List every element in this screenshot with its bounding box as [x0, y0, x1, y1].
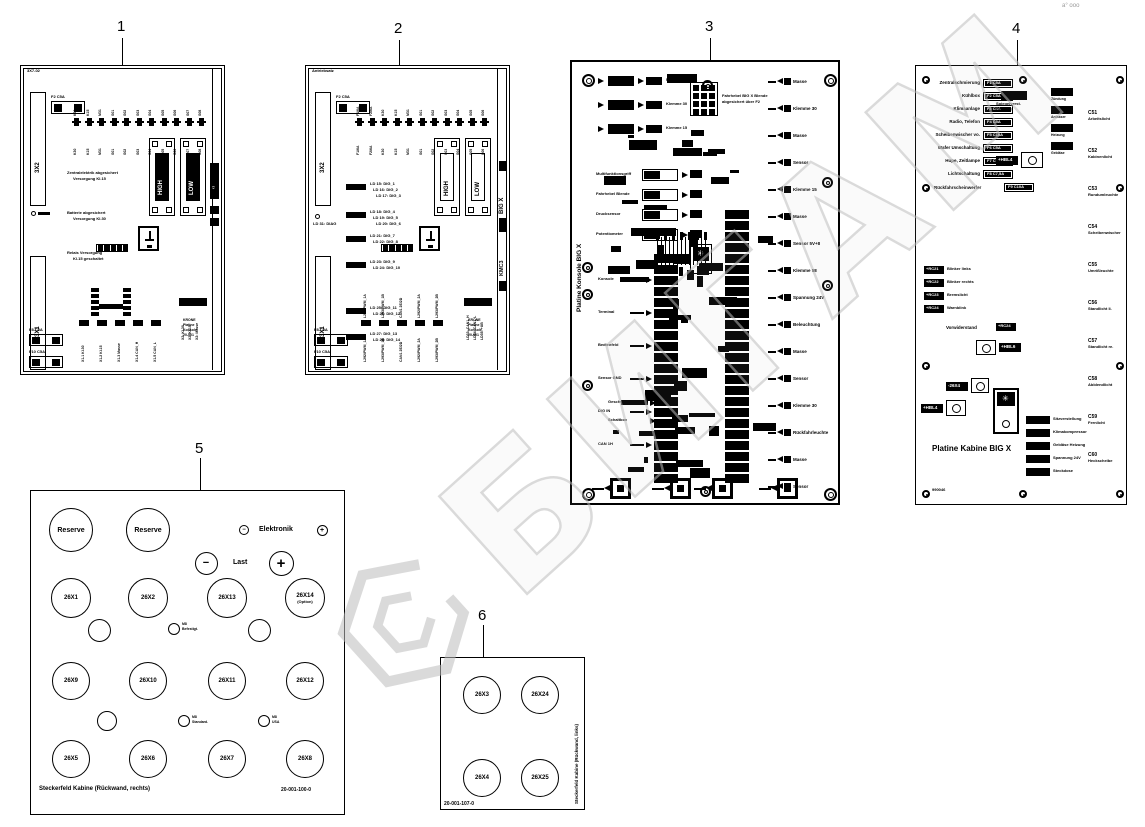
corner-note-line: Platine [468, 323, 479, 327]
connector-circle-label: 26X2 [141, 595, 155, 601]
strip-cell [725, 375, 749, 384]
arrow-icon [777, 321, 783, 327]
panel-side-label: Steckerfeld Kabine (Rückwand, links) [574, 664, 579, 804]
bottom-col-label: L292/PWM_2A [417, 328, 421, 362]
mounting-hole-inner [1120, 80, 1122, 82]
pin-label: S05 [469, 92, 473, 116]
relay-label: +RC23 [926, 293, 939, 298]
component-label: Gebläse [1051, 151, 1065, 155]
pin-bar [455, 121, 464, 123]
component [690, 210, 702, 218]
text-block-line: Zentralelektrik abgesichert [67, 171, 118, 176]
trace [718, 346, 729, 352]
strip-cell [725, 353, 749, 362]
corner-note-line: 20-001 [468, 333, 479, 337]
fuse-label: F8 C5A [314, 328, 328, 333]
component [690, 170, 702, 178]
terminal [784, 240, 791, 247]
terminal [784, 456, 791, 463]
mounting-hole-inner [926, 188, 928, 190]
text-block-line: Kl.15 geschaltet [73, 257, 103, 262]
mid-label: abgesichert über F2 [722, 100, 760, 105]
screw-mark [31, 211, 36, 216]
connector-circle: − [195, 552, 218, 575]
lead-line [768, 243, 776, 245]
relay-tab [152, 207, 158, 213]
trace [673, 148, 702, 155]
relay-tab [152, 141, 158, 147]
connector-circle-label: + [320, 527, 324, 534]
component-fill [644, 211, 660, 219]
comb-line [705, 237, 706, 265]
bar-gap [388, 245, 389, 251]
component-label: Klemme 15 [666, 126, 687, 131]
terminal-label: Sensor [793, 160, 808, 165]
relay-label: +RC22 [926, 280, 939, 285]
relay-tab [468, 207, 474, 213]
trace [711, 177, 730, 184]
bottom-col-label: L293/PWM_2B [435, 328, 439, 362]
mounting-hole-inner [1023, 494, 1025, 496]
strip-cell [725, 210, 749, 219]
lead-line [652, 488, 664, 490]
terminal [784, 267, 791, 274]
pin-bar [468, 121, 477, 123]
trace [636, 260, 658, 269]
connector-circle-label: Reserve [134, 527, 161, 534]
bottom-col-label: X1.1 Kl.30 [81, 328, 85, 362]
connector-circle: 26X8 [286, 740, 324, 778]
arrow-icon [598, 78, 604, 84]
pin-label: K30 [73, 129, 77, 155]
connector-circle-label: 26X6 [141, 756, 155, 762]
fuse-fill: F9 C10A [1006, 185, 1032, 190]
lead-line [630, 345, 644, 347]
connector-circle-label: 26X8 [298, 756, 312, 762]
bottom-col-label: X1.4 CAN_H [135, 328, 139, 362]
pin-bar [380, 121, 389, 123]
component [608, 76, 634, 86]
fuse-box [314, 334, 348, 346]
connector-circle: 26X11 [208, 662, 246, 700]
arrow-icon [777, 213, 783, 219]
arrow-icon [777, 375, 783, 381]
terminal [784, 213, 791, 220]
component-label: Klemme 30 [666, 102, 687, 107]
lamp-name: Standlicht re. [1088, 345, 1113, 350]
trace [631, 228, 636, 236]
trace [628, 135, 634, 138]
bottom-col-cap [397, 320, 407, 326]
fuse-element [337, 337, 345, 344]
component [1001, 91, 1027, 100]
right-col-label: X2: Masse [195, 310, 199, 340]
mounting-hole [824, 488, 837, 501]
diag-label: LD 31: DIAG [313, 222, 336, 227]
fuse-box: F9 C10A [1004, 183, 1034, 192]
component-label: Spannung 24V [1053, 456, 1081, 461]
terminal-label: Klemme 30 [793, 403, 817, 408]
strip-cell [725, 320, 749, 329]
fuse-box: F6 C5A [983, 144, 1013, 153]
lead-line [768, 432, 776, 434]
relay-socket [1021, 152, 1043, 168]
matrix-cell [693, 109, 699, 115]
connector-circle-label: 26X3 [475, 692, 489, 698]
relay: HIGH [434, 138, 460, 216]
matrix-cell [701, 85, 707, 91]
panel-footer-title: Steckerfeld Kabine (Rückwand, rechts) [39, 786, 150, 793]
led [346, 212, 366, 218]
connector-label: 3X2 [320, 133, 327, 173]
pin-label: M31 [98, 92, 102, 116]
terminal-label: Spannung 24V [793, 295, 824, 300]
callout-1: 1 [117, 18, 125, 35]
component [1051, 88, 1073, 96]
h-cell [123, 312, 131, 316]
relay-label: +HBL4 [998, 157, 1012, 162]
connector-circle-label: + [277, 555, 286, 572]
terminal-label: Masse [793, 457, 807, 462]
mounting-hole [582, 488, 595, 501]
lead-line [768, 324, 776, 326]
component-box [642, 169, 678, 181]
relay-tag: +HBL6 [999, 343, 1021, 352]
pin-label: K15 [394, 129, 398, 155]
panel-4-platine-kabine: ZentralschmierungF1 C5AKühlboxF2 C5AKlim… [915, 65, 1127, 505]
pin-bar [122, 121, 131, 123]
relay-body: LOW [186, 153, 200, 201]
relay-body: HIGH [155, 153, 169, 201]
board-side-label: Platine Konsole BIG X [576, 102, 583, 312]
panel-6-steckerfeld-links: 26X326X2426X426X25Steckerfeld Kabine (Rü… [440, 657, 585, 810]
led-label: LD 17: DIG_3 [376, 194, 401, 199]
right-bar [464, 298, 492, 306]
fuse-box [51, 101, 85, 114]
trace [730, 170, 738, 173]
trace [709, 297, 737, 305]
mounting-hole-inner [586, 293, 590, 297]
edge-mark: ‹‹ [212, 173, 218, 189]
component-label: Steckdose [1053, 469, 1073, 474]
component [608, 124, 634, 134]
pin-label: S04 [148, 92, 152, 116]
connector-circle [178, 715, 190, 727]
panel-footer-partno: 20-001-107-0 [444, 802, 474, 808]
h-cell [123, 288, 131, 292]
strip-cell [725, 397, 749, 406]
trace [673, 299, 679, 309]
terminal [784, 78, 791, 85]
relay-tag: +RC23 [924, 292, 944, 300]
power-pin [677, 485, 684, 492]
mounting-hole [822, 280, 833, 291]
component-label: Sensor GND [598, 376, 622, 381]
pin-bar [443, 121, 452, 123]
lead-line [694, 488, 706, 490]
connector-circle: 26X25 [521, 759, 559, 797]
pin-bar [135, 121, 144, 123]
terminal-label: Masse [793, 214, 807, 219]
component [1026, 455, 1050, 463]
pin-label: K15 [86, 129, 90, 155]
strip-cell [654, 463, 678, 472]
led-label: LD 16: DIG_2 [373, 188, 398, 193]
component-label: Sitzverstellung [1053, 417, 1081, 422]
relay-tag: +RC21 [924, 266, 944, 274]
relay-name: Bremslicht [947, 293, 968, 298]
connector-circle-label: − [203, 557, 209, 569]
socket-hole [976, 382, 985, 391]
h-cell [91, 306, 99, 310]
matrix-cell [693, 93, 699, 99]
component-label: Gebläse Heizung [1053, 443, 1085, 448]
terminal-label: Sensor [793, 376, 808, 381]
mounting-hole [824, 74, 837, 87]
connector-circle-label: − [242, 527, 246, 533]
fuse-code: F1 C5A [987, 81, 1001, 86]
corner-note-line: Konsole [468, 328, 482, 332]
trace [690, 468, 711, 478]
connector-circle-label: 26X25 [531, 775, 548, 781]
component-label: Fahrhebel Blende [596, 192, 630, 197]
edge-label: BIG X [499, 174, 506, 214]
leader-line-2 [399, 40, 400, 65]
pin-label: K15 [86, 92, 90, 116]
arrow-icon [638, 78, 644, 84]
trace [758, 236, 773, 243]
fuse-fill: F1 C5A [985, 81, 1011, 86]
matrix-cell [701, 93, 707, 99]
bottom-col-cap [133, 320, 143, 326]
arrow-icon [646, 409, 652, 415]
connector-circle: 26X6 [129, 740, 167, 778]
lead-line [768, 405, 776, 407]
fuse-name: Kühlbox [920, 93, 980, 98]
terminal [784, 402, 791, 409]
bottom-col-label: L293/PWM_1B [381, 298, 385, 318]
fuse-name: Radio, Telefon [920, 119, 980, 124]
arrow-icon [777, 159, 783, 165]
climate-hole [1002, 420, 1010, 428]
edge-block [499, 281, 507, 291]
pin-label: S08 [198, 92, 202, 116]
relay-tab [451, 141, 457, 147]
relay-label: +RC21 [926, 267, 939, 272]
strip-cell [654, 441, 678, 450]
component-label: Klimakompressor [1053, 430, 1087, 435]
arrow-icon [777, 348, 783, 354]
relay-name: Warnblink [947, 306, 966, 311]
switch-symbol-icon [138, 226, 159, 251]
pin-bar [368, 121, 377, 123]
strip-cell [654, 287, 678, 296]
relay-label: +HBL4 [923, 405, 937, 410]
bottom-col-label: L292/PWM_1A [363, 328, 367, 362]
relay-tab [183, 141, 189, 147]
trace [682, 368, 706, 378]
arrow-icon [682, 172, 688, 178]
pin-bar [172, 121, 181, 123]
connector-circle [97, 711, 117, 731]
connector-circle: 26X7 [208, 740, 246, 778]
relay-tag: +RC22 [924, 279, 944, 287]
lamp-name: Arbeitslicht [1088, 117, 1110, 122]
pin-bar [97, 121, 106, 123]
fuse-box [29, 334, 63, 346]
lead-line [768, 351, 776, 353]
callout-6: 6 [478, 607, 486, 624]
relay-name: Blinker rechts [947, 280, 974, 285]
arrow-icon [646, 343, 652, 349]
small-conn-label: M8 [182, 622, 187, 626]
terminal [784, 186, 791, 193]
panel-footer-partno: 20-001-100-0 [281, 788, 311, 794]
relay-label: LOW [189, 159, 196, 195]
arrow-icon [650, 418, 656, 424]
component [1026, 429, 1050, 437]
relay-coil [1028, 156, 1037, 165]
sym-bar [145, 239, 154, 241]
matrix-cell [701, 101, 707, 107]
fuse-element [339, 104, 347, 112]
connector-circle [168, 623, 180, 635]
connector-circle-label: 26X7 [220, 756, 234, 762]
connector-3x2: 3X2 [30, 92, 46, 206]
component-label: Drucksensor [596, 212, 620, 217]
pin-bar [393, 121, 402, 123]
led [346, 184, 366, 190]
trace [620, 277, 649, 282]
board-header: 3X7-02 [27, 69, 40, 74]
pin-bar [147, 121, 156, 123]
connector-circle: 26X9 [52, 662, 90, 700]
fuse-fill: F5 C10A [985, 133, 1011, 138]
trace [644, 457, 648, 463]
connector-circle: 26X14(Option) [285, 578, 325, 618]
pin-label: F1/6A [356, 92, 360, 116]
pin-bar [72, 121, 81, 123]
bottom-col-label: L292/PWM_1A [363, 298, 367, 318]
trace [699, 263, 723, 271]
mounting-hole-inner [586, 384, 590, 388]
lead-line [768, 297, 776, 299]
led-label: LD 19: DIG_5 [373, 216, 398, 221]
relay-tab [468, 141, 474, 147]
arrow-icon [646, 310, 652, 316]
lead-line [768, 162, 776, 164]
small-conn-label: Befestigt. [182, 627, 198, 631]
connector-label: 3X2 [35, 133, 42, 173]
fuse-code: F2 C5A [987, 94, 1001, 99]
bottom-col-cap [97, 320, 107, 326]
strip-cell [654, 331, 678, 340]
text-block-line: Batterie abgesichert [67, 211, 105, 216]
power-connector [777, 478, 798, 499]
terminal [784, 105, 791, 112]
mounting-hole-inner [1120, 494, 1122, 496]
relay-tag: +RC24 [924, 305, 944, 313]
trace [658, 245, 664, 255]
arrow-icon [777, 78, 783, 84]
trace [608, 266, 630, 274]
fuse-name: Klimaanlage [920, 106, 980, 111]
strip-cell [725, 243, 749, 252]
connector-circle-label: 26X9 [64, 678, 78, 684]
mounting-hole-inner [1120, 188, 1122, 190]
terminal-label: Masse [793, 349, 807, 354]
mounting-hole [1019, 490, 1027, 498]
mounting-hole-inner [926, 366, 928, 368]
component-label: Bedienfeld [598, 343, 618, 348]
right-col-label: LD35: +UB [480, 310, 484, 340]
mounting-hole-inner [586, 78, 592, 84]
fuse-name: Zentralschmierung [920, 80, 980, 85]
board-header: Antriebsatz [312, 69, 334, 74]
text-block-line: Versorgung Kl.30 [73, 217, 106, 222]
mounting-hole [922, 184, 930, 192]
fuse-label: F10 C5A [314, 350, 330, 355]
component [646, 125, 662, 133]
trace [675, 427, 694, 434]
terminal-label: Klemme 58 [793, 268, 817, 273]
panel-3-platine-konsole: Platine Konsole BIG XMasseKlemme 30Klemm… [570, 60, 840, 505]
mounting-hole [582, 289, 593, 300]
connector-circle-label: 26X1 [64, 595, 78, 601]
terminal-label: Beleuchtung [793, 322, 820, 327]
panel-2-platine-kmc3: Antriebsatz3X23X1F2 C5AF1/6AF1/6AF2/6AF2… [305, 65, 510, 375]
right-bar [179, 298, 207, 306]
sym-foot [147, 245, 152, 248]
h-cell [91, 288, 99, 292]
arrow-icon [777, 132, 783, 138]
text-block-line: Versorgung Kl.15 [73, 177, 106, 182]
fuse-box [336, 101, 370, 114]
lead-line [630, 411, 644, 413]
switch-symbol-icon [419, 226, 440, 251]
strip-cell [725, 309, 749, 318]
component [1026, 442, 1050, 450]
led [346, 262, 366, 268]
component [1026, 416, 1050, 424]
component-fill [644, 191, 660, 199]
pin-label: F1/6A [356, 129, 360, 155]
lead-line [768, 189, 776, 191]
power-connector [670, 478, 691, 499]
pin-label: S03 [136, 92, 140, 116]
connector-circle: − [239, 525, 249, 535]
pin-label: F2/6A [369, 92, 373, 116]
led-label: LD 20: DIG_6 [376, 222, 401, 227]
terminal [784, 348, 791, 355]
relay-tab [197, 141, 203, 147]
bar-gap [395, 245, 396, 251]
connector-circle [248, 619, 271, 642]
sym-line [149, 231, 151, 239]
component-label: Anlasser [1051, 115, 1066, 119]
lead-line [768, 135, 776, 137]
corner-note-line: 20-001 [183, 333, 194, 337]
relay-socket [976, 340, 996, 355]
component-label: Spiegelverst. Heizung [996, 102, 1036, 111]
matrix-cell [693, 101, 699, 107]
trace [669, 315, 690, 320]
component [1051, 142, 1073, 150]
corner-note-line: Platine [183, 323, 194, 327]
bar-gap [382, 245, 383, 251]
component-label: CAN 1H [598, 442, 613, 447]
bar-gap [401, 245, 402, 251]
